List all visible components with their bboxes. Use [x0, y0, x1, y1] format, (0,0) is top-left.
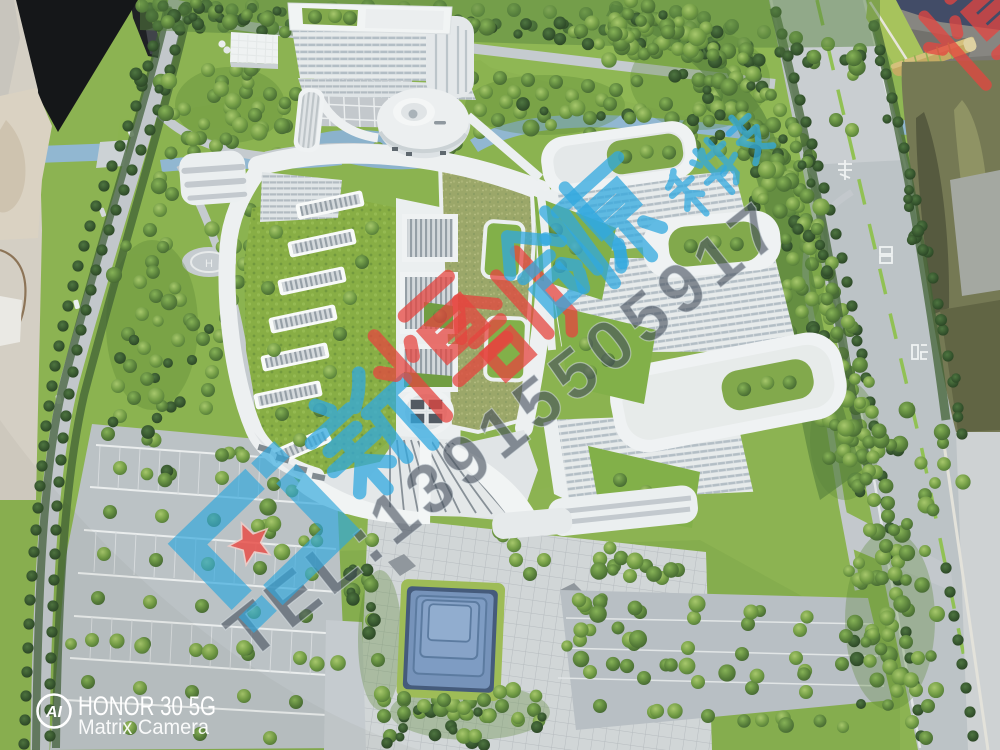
svg-text:AI: AI [45, 704, 63, 721]
svg-text:Matrix Camera: Matrix Camera [78, 716, 209, 739]
